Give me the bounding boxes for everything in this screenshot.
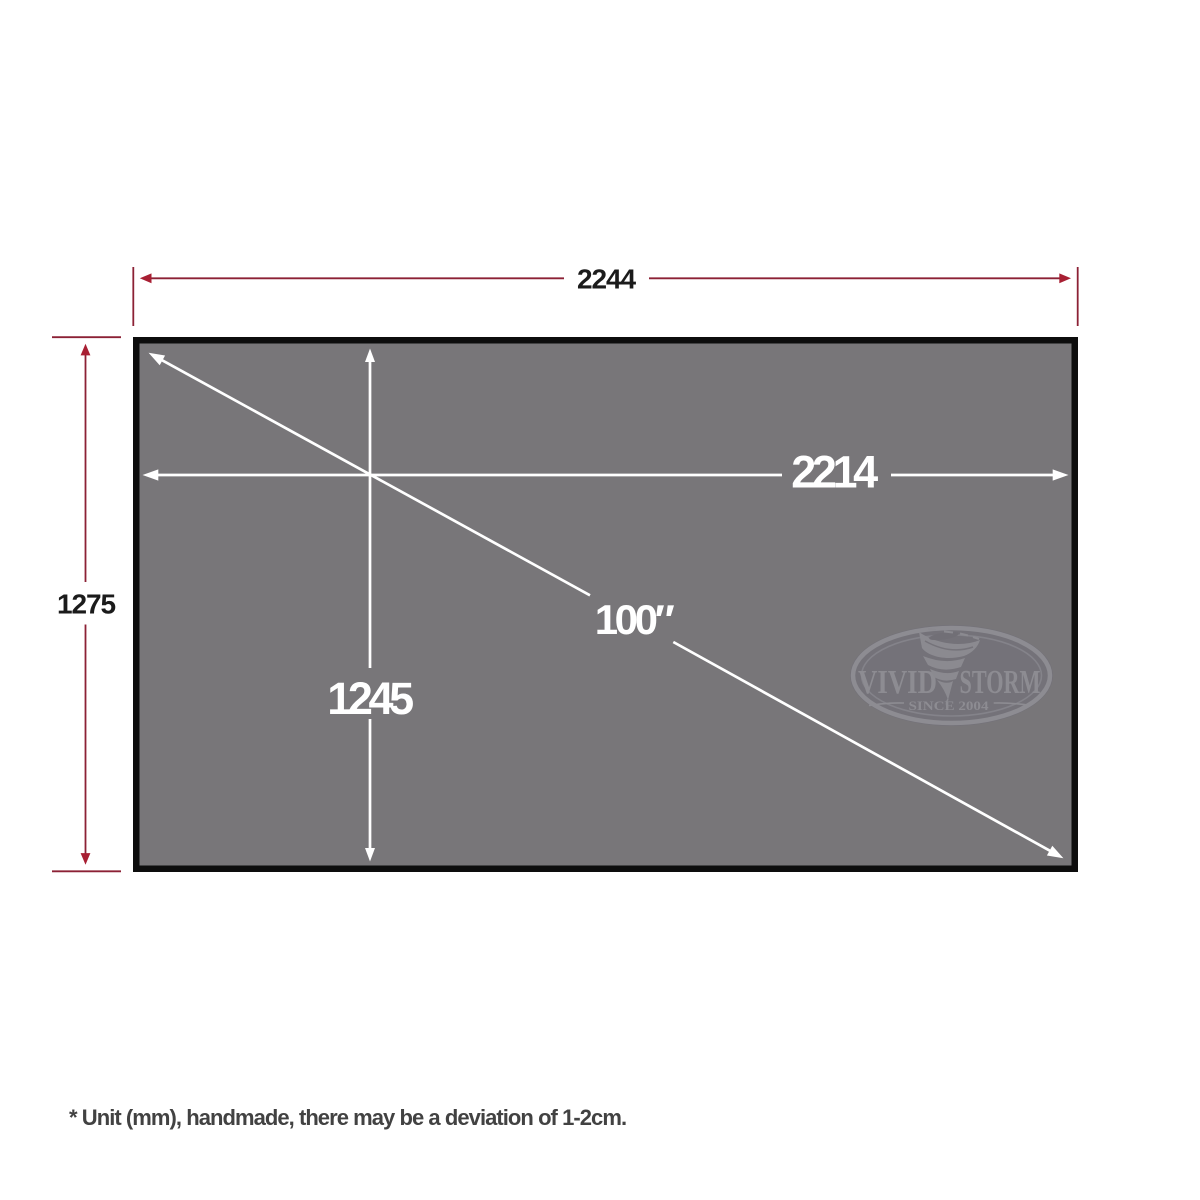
svg-text:1245: 1245	[327, 673, 413, 724]
svg-text:2214: 2214	[791, 447, 878, 498]
svg-text:100″: 100″	[595, 596, 675, 643]
svg-text:* Unit (mm), handmade, there m: * Unit (mm), handmade, there may be a de…	[69, 1105, 626, 1130]
svg-text:1275: 1275	[57, 589, 115, 620]
svg-text:STORM: STORM	[960, 664, 1041, 701]
svg-text:SINCE 2004: SINCE 2004	[909, 699, 990, 713]
svg-text:2244: 2244	[577, 264, 636, 295]
svg-text:VIVID: VIVID	[858, 664, 937, 701]
